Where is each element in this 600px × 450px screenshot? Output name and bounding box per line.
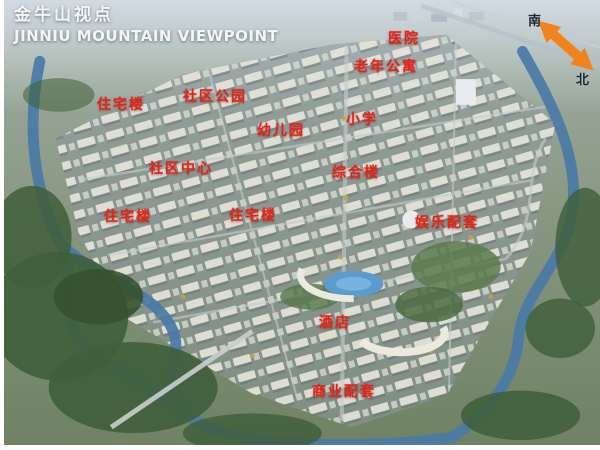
aerial-masterplan-image <box>4 0 600 445</box>
aerial-viewpoint-screenshot: 金牛山视点 JINNIU MOUNTAIN VIEWPOINT 南 北 医院老年… <box>0 0 600 450</box>
